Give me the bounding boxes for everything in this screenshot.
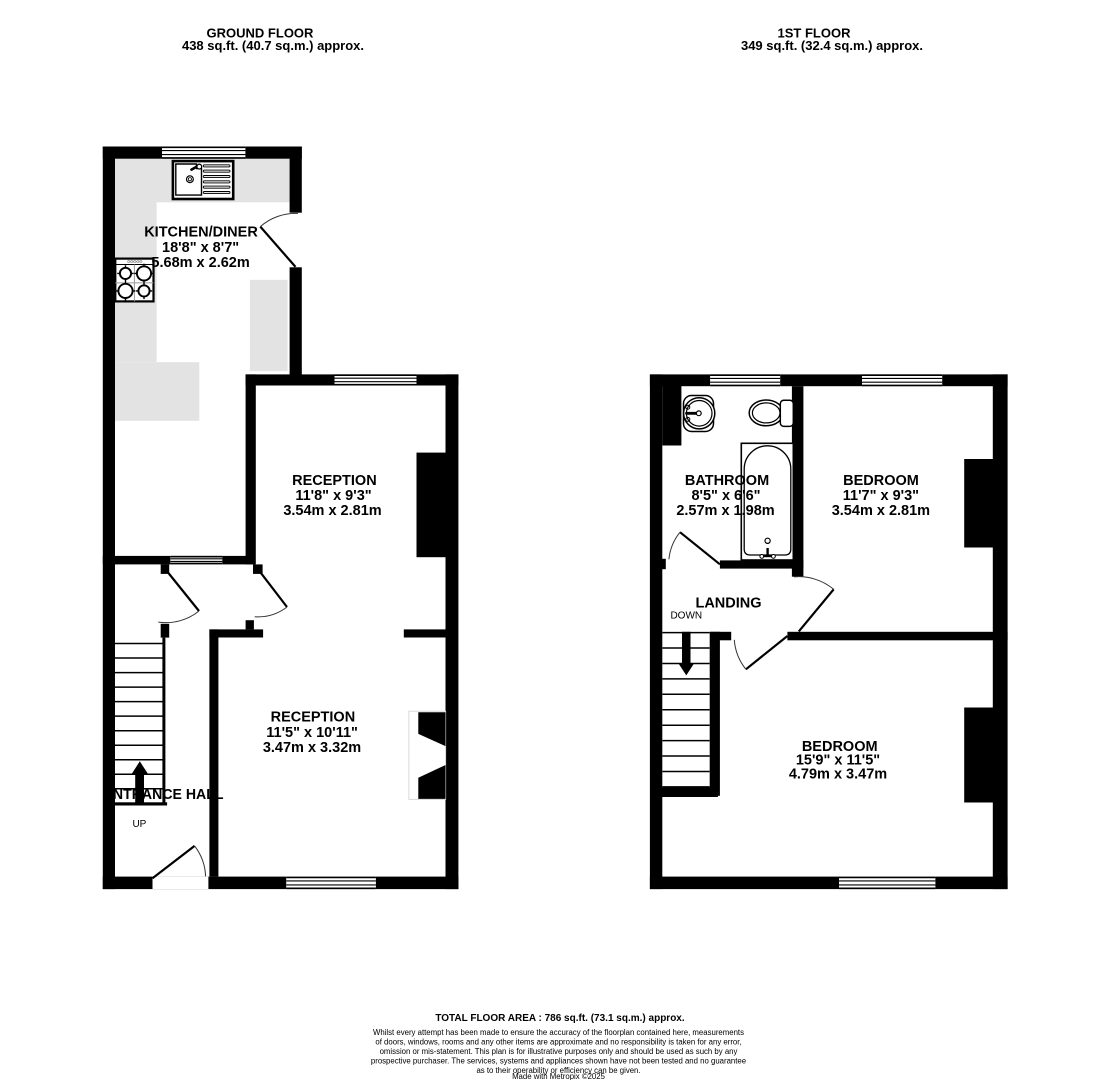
svg-text:11'5" x 10'11": 11'5" x 10'11" — [266, 725, 358, 741]
svg-text:UP: UP — [132, 819, 146, 830]
svg-text:KITCHEN/DINER: KITCHEN/DINER — [144, 224, 258, 240]
svg-text:438 sq.ft. (40.7 sq.m.) approx: 438 sq.ft. (40.7 sq.m.) approx. — [182, 38, 364, 53]
svg-text:RECEPTION: RECEPTION — [271, 709, 356, 725]
svg-text:TOTAL FLOOR AREA : 786 sq.ft.: TOTAL FLOOR AREA : 786 sq.ft. (73.1 sq.m… — [435, 1013, 685, 1024]
svg-text:11'8" x 9'3": 11'8" x 9'3" — [295, 488, 371, 504]
svg-text:BATHROOM: BATHROOM — [685, 473, 769, 489]
svg-text:349 sq.ft. (32.4 sq.m.) approx: 349 sq.ft. (32.4 sq.m.) approx. — [741, 38, 923, 53]
svg-text:ENTRANCE HALL: ENTRANCE HALL — [104, 787, 224, 803]
svg-text:5.68m x 2.62m: 5.68m x 2.62m — [151, 255, 249, 271]
svg-text:4.79m x 3.47m: 4.79m x 3.47m — [789, 766, 887, 782]
svg-text:3.54m x 2.81m: 3.54m x 2.81m — [832, 503, 930, 519]
svg-text:DOWN: DOWN — [670, 611, 702, 622]
svg-text:11'7" x 9'3": 11'7" x 9'3" — [843, 488, 919, 504]
svg-text:Made with Metropix ©2025: Made with Metropix ©2025 — [512, 1072, 606, 1080]
svg-text:Whilst every attempt has been: Whilst every attempt has been made to en… — [373, 1028, 744, 1037]
svg-text:prospective purchaser. The ser: prospective purchaser. The services, sys… — [371, 1056, 746, 1065]
svg-text:LANDING: LANDING — [695, 595, 761, 611]
svg-text:omission or mis-statement. Thi: omission or mis-statement. This plan is … — [380, 1047, 738, 1056]
svg-text:8'5" x 6'6": 8'5" x 6'6" — [691, 488, 760, 504]
svg-text:2.57m x 1.98m: 2.57m x 1.98m — [676, 503, 774, 519]
svg-text:BEDROOM: BEDROOM — [843, 473, 919, 489]
svg-text:3.54m x 2.81m: 3.54m x 2.81m — [283, 503, 381, 519]
svg-text:3.47m x 3.32m: 3.47m x 3.32m — [263, 740, 361, 756]
svg-text:18'8" x 8'7": 18'8" x 8'7" — [162, 240, 239, 256]
svg-text:RECEPTION: RECEPTION — [292, 473, 377, 489]
svg-text:of doors, windows, rooms and a: of doors, windows, rooms and any other i… — [375, 1037, 741, 1046]
